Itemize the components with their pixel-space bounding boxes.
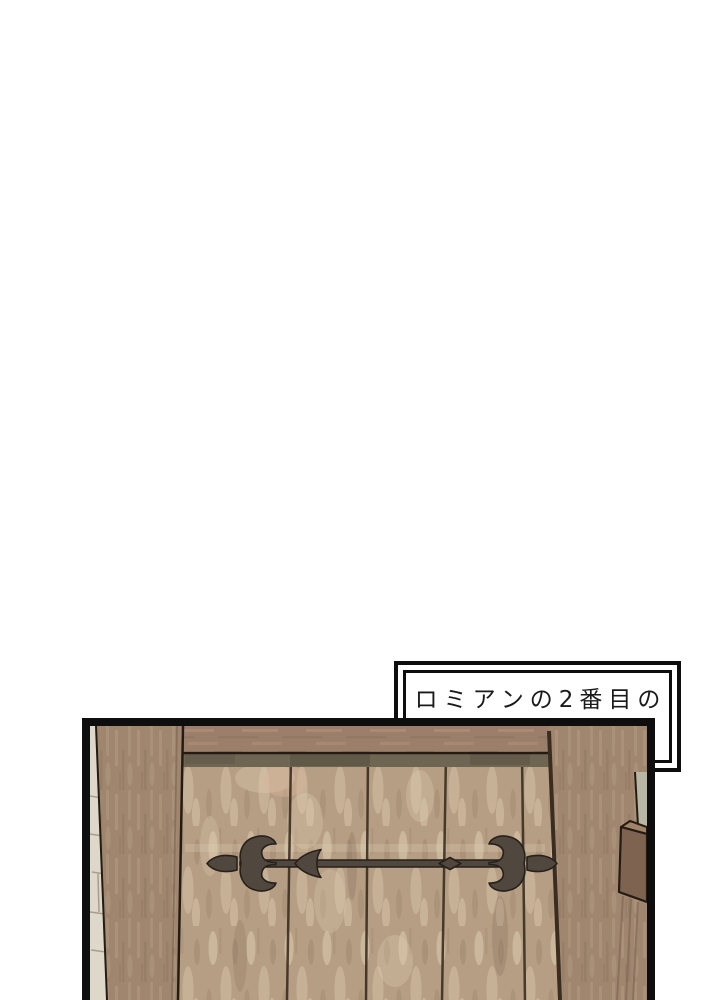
left-post-grain	[96, 726, 183, 1000]
wood-highlight	[287, 793, 323, 849]
wood-highlight-band	[185, 844, 545, 852]
lintel-shadow-dark	[470, 754, 530, 765]
comic-panel	[82, 718, 655, 1000]
wood-highlight	[314, 869, 346, 933]
wood-shade	[492, 896, 508, 976]
door-illustration	[90, 726, 647, 1000]
wood-highlight	[377, 935, 413, 987]
lintel-beam	[183, 726, 549, 753]
lintel-shadow-dark	[185, 754, 235, 764]
lintel-shadow	[183, 753, 549, 767]
wood-shade	[233, 920, 247, 992]
latch-block	[619, 821, 647, 902]
latch-block-front	[619, 827, 647, 902]
lintel-shadow-dark	[290, 754, 370, 766]
left-post	[96, 726, 183, 1000]
wood-highlight	[406, 770, 434, 822]
lintel-beam-grain	[183, 726, 549, 753]
caption-line-1: ロミアンの2番目の	[409, 684, 667, 717]
wood-highlight-warm	[263, 765, 307, 797]
hinge-scroll-left	[240, 836, 276, 891]
wall-gap	[635, 772, 647, 826]
page: ロミアンの2番目の 秘密基地	[0, 0, 720, 1000]
hinge-scroll-right	[489, 836, 525, 891]
hinge-bar	[240, 860, 524, 867]
